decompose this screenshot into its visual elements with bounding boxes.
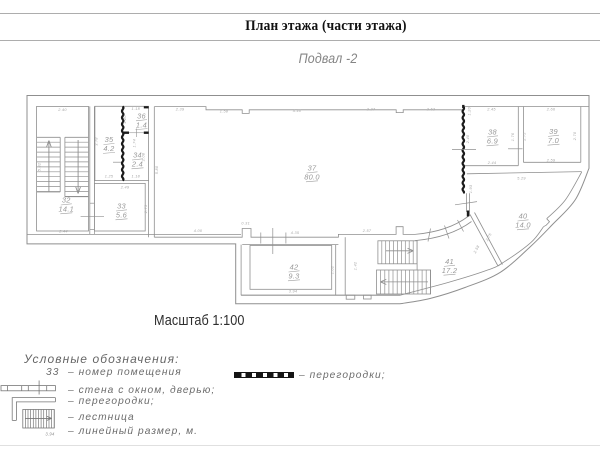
svg-text:3.78: 3.78 [95, 137, 99, 146]
svg-text:1.02: 1.02 [331, 265, 335, 274]
svg-text:1.18: 1.18 [132, 175, 141, 179]
svg-text:37: 37 [308, 164, 317, 173]
svg-text:2.08: 2.08 [142, 152, 146, 162]
svg-text:4.2: 4.2 [103, 144, 114, 153]
svg-text:4.40: 4.40 [293, 109, 302, 113]
svg-text:5.29: 5.29 [517, 177, 526, 181]
svg-text:1.42: 1.42 [354, 261, 358, 270]
svg-text:39: 39 [549, 127, 558, 136]
svg-text:9.3: 9.3 [288, 272, 300, 281]
svg-text:3.94: 3.94 [45, 431, 55, 436]
svg-text:1.93: 1.93 [469, 184, 473, 193]
svg-text:5.80: 5.80 [155, 165, 159, 174]
svg-text:4.35: 4.35 [291, 231, 300, 235]
svg-text:17.2: 17.2 [442, 266, 458, 275]
svg-text:32: 32 [62, 196, 71, 205]
svg-text:14.0: 14.0 [515, 221, 531, 230]
svg-text:2.75: 2.75 [144, 204, 148, 214]
svg-text:2.49: 2.49 [120, 186, 130, 190]
svg-text:2.44: 2.44 [58, 229, 68, 233]
svg-text:2.66: 2.66 [546, 107, 556, 111]
svg-text:33: 33 [117, 202, 126, 211]
svg-text:1.58: 1.58 [220, 110, 229, 114]
svg-text:1.20: 1.20 [123, 115, 127, 124]
svg-text:1.25: 1.25 [105, 175, 114, 179]
svg-text:38: 38 [488, 128, 497, 137]
svg-text:2.40: 2.40 [466, 134, 470, 144]
svg-text:2.27: 2.27 [366, 108, 376, 112]
svg-text:0.31: 0.31 [241, 221, 250, 225]
svg-text:6.9: 6.9 [487, 137, 498, 146]
svg-text:1.76: 1.76 [511, 132, 515, 141]
svg-text:2.39: 2.39 [175, 107, 185, 111]
svg-text:42: 42 [290, 263, 299, 272]
svg-text:2.59: 2.59 [546, 159, 556, 163]
svg-text:2.72: 2.72 [522, 132, 526, 142]
svg-text:2.58: 2.58 [472, 244, 480, 255]
svg-text:1.18: 1.18 [132, 107, 141, 111]
svg-text:2.70: 2.70 [573, 131, 577, 141]
svg-text:5.82: 5.82 [38, 162, 42, 171]
svg-text:14.1: 14.1 [59, 205, 75, 214]
svg-text:2.40: 2.40 [57, 108, 67, 112]
svg-text:41: 41 [445, 257, 454, 266]
svg-text:3.94: 3.94 [289, 290, 298, 294]
svg-text:40: 40 [519, 212, 528, 221]
svg-text:1.4: 1.4 [136, 120, 147, 129]
svg-text:1.74: 1.74 [133, 139, 137, 148]
svg-text:2.57: 2.57 [362, 229, 372, 233]
svg-text:35: 35 [105, 135, 114, 144]
svg-text:80.0: 80.0 [304, 173, 320, 182]
svg-text:2.44: 2.44 [487, 161, 497, 165]
svg-text:2.62: 2.62 [426, 108, 436, 112]
svg-text:1.20: 1.20 [467, 106, 471, 115]
svg-text:5.6: 5.6 [116, 211, 128, 220]
svg-text:2.45: 2.45 [486, 108, 496, 112]
svg-text:4.00: 4.00 [194, 229, 203, 233]
svg-text:36: 36 [137, 111, 146, 120]
svg-text:34: 34 [133, 151, 142, 160]
svg-text:7.0: 7.0 [548, 136, 560, 145]
